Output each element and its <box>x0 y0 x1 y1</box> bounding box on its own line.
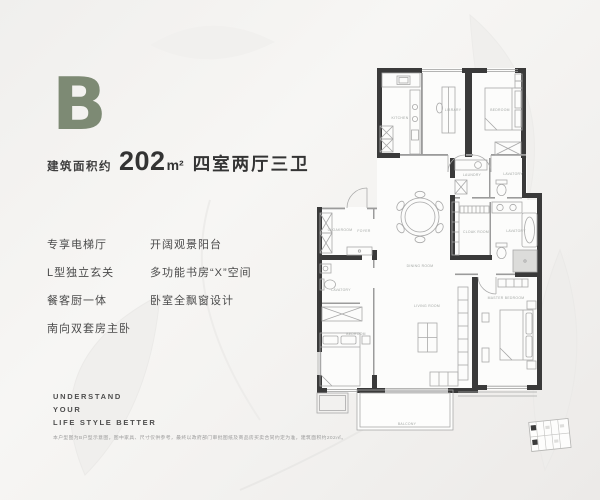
floorplan-floor <box>317 68 542 430</box>
slogan-line: UNDERSTAND <box>53 392 157 401</box>
feature-item: 多功能书房“X”空间 <box>150 268 252 279</box>
room-label-laundry: LAUNDRY <box>463 173 482 177</box>
page: B 建筑面积约 202 m² 四室两厅三卫 专享电梯厅 L型独立玄关 餐客厨一体… <box>0 0 600 500</box>
feature-item: 开阔观景阳台 <box>150 240 252 251</box>
room-label-master: MASTER BEDROOM <box>488 296 525 300</box>
feature-item: 南向双套房主卧 <box>47 324 131 335</box>
disclaimer-text: 本户型图为B户型示意图，图中家具、尺寸仅供参考，最终以政府部门审批图纸及商品房买… <box>53 434 346 441</box>
area-number: 202 <box>119 146 166 177</box>
room-label-lavatory-master: LAVATORY <box>506 229 526 233</box>
room-label-cloakroom: CLOAKROOM <box>328 228 353 232</box>
room-label-living: LIVING ROOM <box>414 304 440 308</box>
slogan-line: YOUR <box>53 405 157 414</box>
slogan-line: LIFE STYLE BETTER <box>53 418 157 427</box>
room-label-balcony: BALCONY <box>398 422 417 426</box>
feature-item: 卧室全飘窗设计 <box>150 296 252 307</box>
room-label-kitchen: KITCHEN <box>392 116 409 120</box>
room-label-lavatory-left: LAVATORY <box>331 288 351 292</box>
room-label-dining: DINING ROOM <box>407 264 434 268</box>
feature-item: L型独立玄关 <box>47 268 131 279</box>
feature-item: 专享电梯厅 <box>47 240 131 251</box>
room-label-cloak-master: CLOAK ROOM <box>463 230 489 234</box>
floorplan: KITCHEN LIBRARY BEDROOM LAUNDRY LAVATORY… <box>310 50 570 465</box>
unit-locator-icon <box>524 410 576 462</box>
room-label-bedroom-left: BEDROOM <box>346 332 366 336</box>
room-label-lavatory-mid: LAVATORY <box>503 172 523 176</box>
unit-type-letter: B <box>52 76 108 132</box>
room-label-library: LIBRARY <box>445 108 462 112</box>
feature-item: 餐客厨一体 <box>47 296 131 307</box>
feature-column-1: 专享电梯厅 L型独立玄关 餐客厨一体 南向双套房主卧 <box>47 240 131 335</box>
room-label-bedroom-top: BEDROOM <box>490 108 510 112</box>
area-line: 建筑面积约 202 m² 四室两厅三卫 <box>47 146 310 177</box>
room-label-foyer: FOYER <box>357 229 370 233</box>
slogan: UNDERSTAND YOUR LIFE STYLE BETTER <box>53 392 157 427</box>
area-label: 建筑面积约 <box>47 158 112 174</box>
area-unit: m² <box>167 157 184 173</box>
feature-column-2: 开阔观景阳台 多功能书房“X”空间 卧室全飘窗设计 <box>150 240 252 307</box>
layout-text: 四室两厅三卫 <box>193 151 310 176</box>
